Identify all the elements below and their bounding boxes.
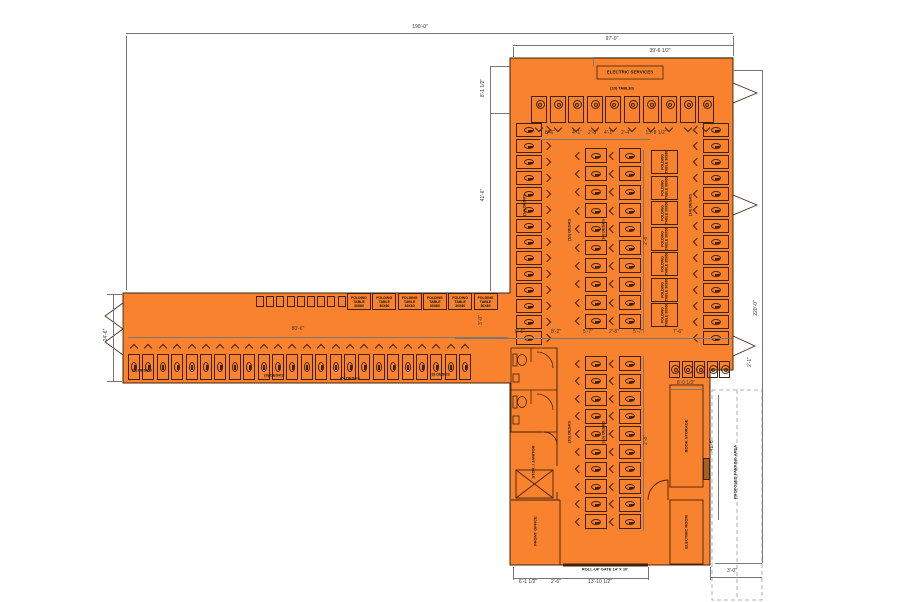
parking-area bbox=[712, 390, 762, 600]
building-footprint bbox=[123, 58, 733, 565]
door-icon bbox=[733, 83, 757, 356]
floor-plan-canvas: FOLDING TABLE 30X60FOLDING TABLE 30X60FO… bbox=[0, 0, 900, 602]
double-door-icon bbox=[105, 303, 123, 355]
building-outline bbox=[0, 0, 900, 602]
wall-hatch bbox=[703, 458, 710, 480]
